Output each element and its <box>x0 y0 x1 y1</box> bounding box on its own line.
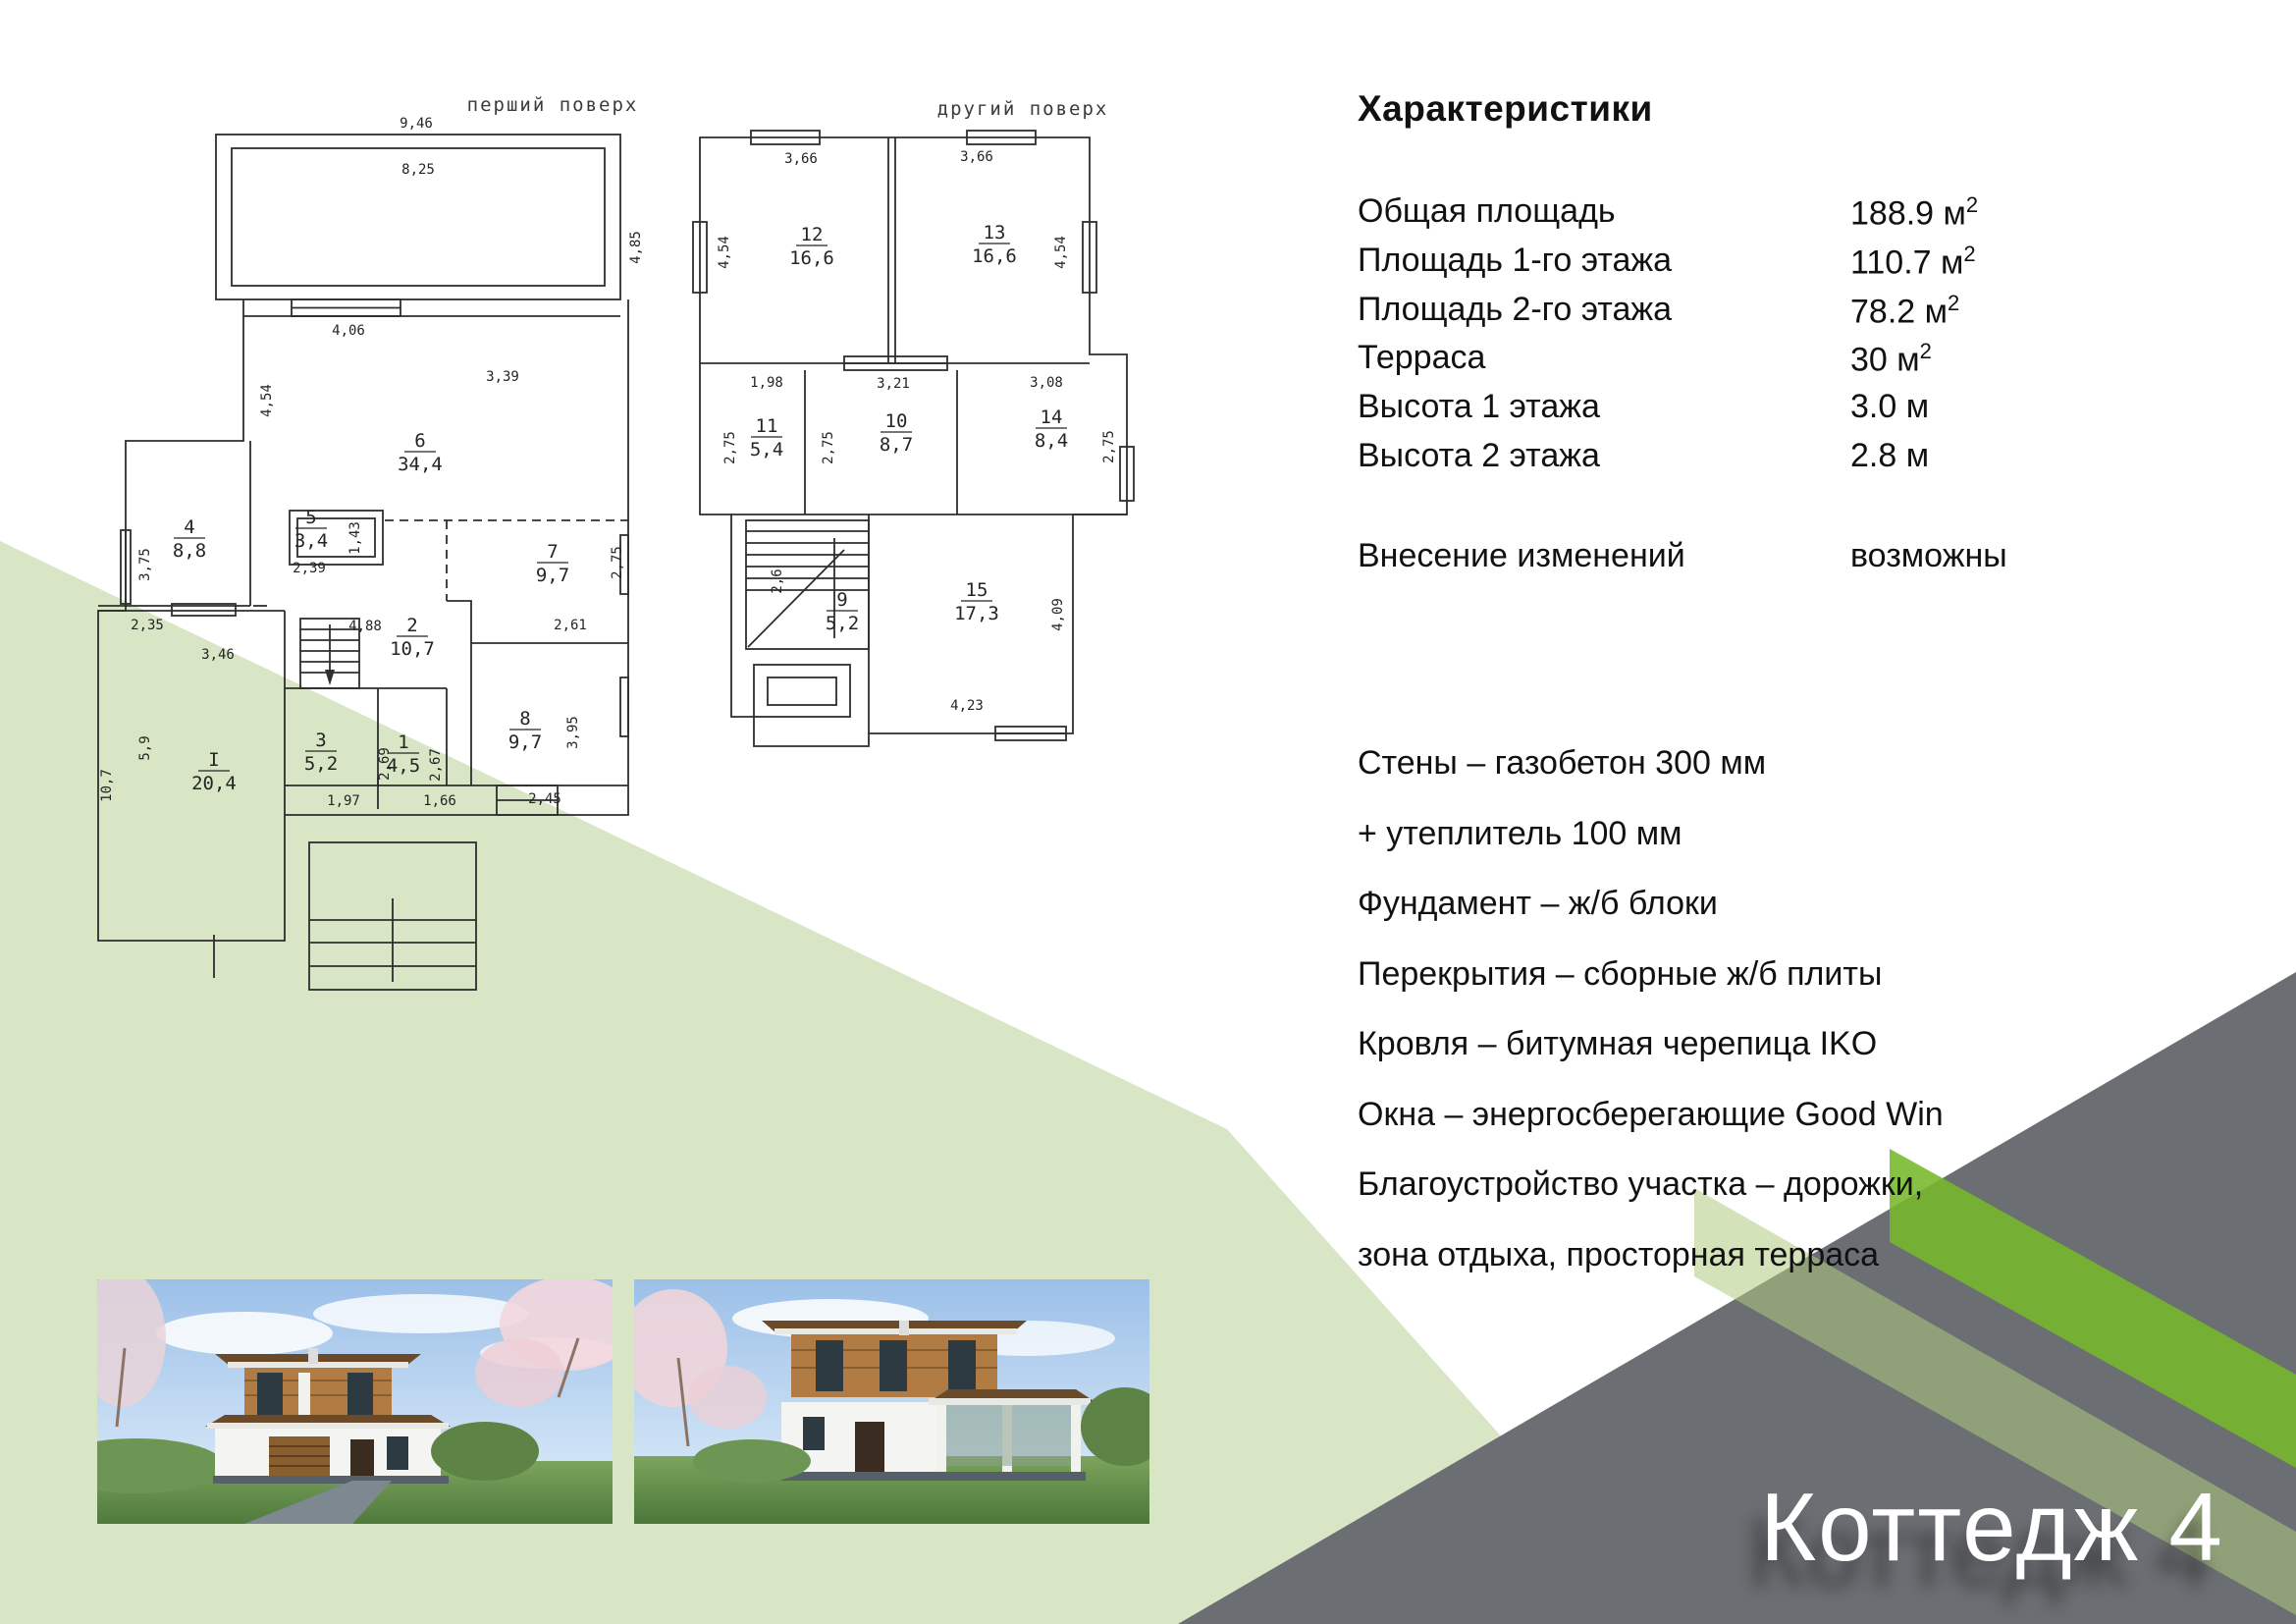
construction-detail-line: + утеплитель 100 мм <box>1358 799 2221 870</box>
dimension-label: 3,39 <box>486 369 519 385</box>
dimension-label: 2,75 <box>1101 430 1117 463</box>
room-number: 1 <box>398 731 408 753</box>
characteristic-label: Площадь 2-го этажа <box>1358 291 1850 329</box>
characteristic-value: 3.0 м <box>1850 388 1929 426</box>
dimension-label: 3,21 <box>877 376 910 392</box>
dimension-label: 1,43 <box>347 521 363 555</box>
dimension-label: 4,23 <box>950 698 984 714</box>
dimension-label: 4,85 <box>628 231 644 264</box>
room-number: I <box>208 749 219 771</box>
dimension-label: 4,06 <box>332 323 365 339</box>
changes-note: Внесение изменений возможны <box>1358 537 2163 575</box>
dimension-label: 4,54 <box>717 236 732 269</box>
dimension-label: 10,7 <box>99 769 115 802</box>
second-floor-plan-labels: 1216,61316,6115,4108,7148,495,21517,33,6… <box>717 149 1117 714</box>
project-title: Коттедж 4 <box>1760 1479 2224 1575</box>
room-number: 4 <box>184 516 194 538</box>
room-number: 5 <box>305 507 316 528</box>
room-area: 5,4 <box>750 439 783 460</box>
characteristic-label: Общая площадь <box>1358 192 1850 231</box>
characteristic-row: Высота 1 этажа3.0 м <box>1358 388 2163 437</box>
characteristics-table: Общая площадь188.9 м2Площадь 1-го этажа1… <box>1358 192 2163 486</box>
characteristic-value: 110.7 м2 <box>1850 242 1976 282</box>
room-area: 8,8 <box>173 540 206 562</box>
characteristic-row: Площадь 1-го этажа110.7 м2 <box>1358 242 2163 291</box>
room-area: 20,4 <box>191 773 237 794</box>
characteristic-value: 188.9 м2 <box>1850 192 1978 233</box>
changes-note-value: возможны <box>1850 537 2007 575</box>
brochure-page: { "characteristics": { "title": "Характе… <box>0 0 2296 1624</box>
room-number: 12 <box>801 224 824 245</box>
characteristic-row: Общая площадь188.9 м2 <box>1358 192 2163 242</box>
dimension-label: 9,46 <box>400 116 433 132</box>
dimension-label: 4,54 <box>1053 236 1069 269</box>
dimension-label: 1,97 <box>327 793 360 809</box>
dimension-label: 2,45 <box>528 791 561 807</box>
changes-note-label: Внесение изменений <box>1358 537 1850 575</box>
dimension-label: 2,35 <box>131 618 164 633</box>
characteristic-value: 2.8 м <box>1850 437 1929 475</box>
characteristics-title: Характеристики <box>1358 88 1653 130</box>
room-number: 10 <box>885 410 908 432</box>
construction-detail-line: Стены – газобетон 300 мм <box>1358 729 2221 799</box>
room-area: 16,6 <box>972 245 1017 267</box>
room-area: 16,6 <box>789 247 834 269</box>
dimension-label: 1,66 <box>423 793 456 809</box>
dimension-label: 2,6 <box>770 568 785 593</box>
dimension-label: 2,75 <box>722 431 738 464</box>
dimension-label: 3,08 <box>1030 375 1063 391</box>
dimension-label: 1,98 <box>750 375 783 391</box>
room-number: 14 <box>1041 406 1063 428</box>
room-area: 5,2 <box>826 613 859 634</box>
cottage-photo-front <box>97 1279 613 1524</box>
construction-detail-line: Окна – энергосберегающие Good Win <box>1358 1080 2221 1151</box>
construction-detail-line: Перекрытия – сборные ж/б плиты <box>1358 940 2221 1010</box>
dimension-label: 2,69 <box>377 747 393 781</box>
room-number: 13 <box>984 222 1006 244</box>
room-number: 2 <box>406 615 417 636</box>
room-area: 8,4 <box>1035 430 1068 452</box>
dimension-label: 2,39 <box>293 561 326 576</box>
construction-detail-line: Благоустройство участка – дорожки, <box>1358 1150 2221 1220</box>
construction-detail-line: Кровля – битумная черепица IKO <box>1358 1009 2221 1080</box>
dimension-label: 3,66 <box>960 149 993 165</box>
characteristic-label: Площадь 1-го этажа <box>1358 242 1850 280</box>
dimension-label: 3,95 <box>565 716 581 749</box>
construction-detail-line: Фундамент – ж/б блоки <box>1358 869 2221 940</box>
characteristic-row: Высота 2 этажа2.8 м <box>1358 437 2163 486</box>
cottage-photo-front-render <box>97 1279 613 1524</box>
room-number: 6 <box>414 430 425 452</box>
dimension-label: 2,75 <box>821 431 836 464</box>
room-area: 9,7 <box>508 731 542 753</box>
characteristic-label: Терраса <box>1358 339 1850 377</box>
dimension-label: 4,88 <box>348 619 382 634</box>
characteristic-label: Высота 2 этажа <box>1358 437 1850 475</box>
dimension-label: 4,09 <box>1050 598 1066 631</box>
characteristic-row: Площадь 2-го этажа78.2 м2 <box>1358 291 2163 340</box>
dimension-label: 3,46 <box>201 647 235 663</box>
room-area: 3,4 <box>294 530 328 552</box>
characteristic-value: 78.2 м2 <box>1850 291 1959 331</box>
room-number: 11 <box>756 415 778 437</box>
room-number: 15 <box>966 579 988 601</box>
room-number: 3 <box>315 730 326 751</box>
room-number: 8 <box>519 708 530 730</box>
dimension-label: 2,67 <box>428 748 444 782</box>
dimension-label: 8,25 <box>401 162 435 178</box>
cottage-photo-terrace <box>634 1279 1149 1524</box>
dimension-label: 2,61 <box>554 618 587 633</box>
room-number: 9 <box>836 589 847 611</box>
characteristic-value: 30 м2 <box>1850 339 1932 379</box>
room-area: 5,2 <box>304 753 338 775</box>
construction-detail-line: зона отдыха, просторная терраса <box>1358 1220 2221 1291</box>
room-area: 8,7 <box>880 434 913 456</box>
room-number: 7 <box>547 541 558 563</box>
room-area: 17,3 <box>954 603 999 624</box>
dimension-label: 3,66 <box>784 151 818 167</box>
characteristic-row: Терраса30 м2 <box>1358 339 2163 388</box>
room-area: 9,7 <box>536 565 569 586</box>
dimension-label: 4,54 <box>259 384 275 417</box>
dimension-label: 3,75 <box>137 548 153 581</box>
cottage-photo-terrace-render <box>634 1279 1149 1524</box>
first-floor-plan-labels: 634,448,853,479,7210,735,214,589,7I20,49… <box>99 116 644 809</box>
first-floor-title: перший поверх <box>467 94 639 116</box>
construction-details: Стены – газобетон 300 мм+ утеплитель 100… <box>1358 729 2221 1290</box>
second-floor-title: другий поверх <box>937 98 1109 120</box>
room-area: 10,7 <box>390 638 435 660</box>
dimension-label: 5,9 <box>137 735 153 760</box>
characteristic-label: Высота 1 этажа <box>1358 388 1850 426</box>
dimension-label: 2,75 <box>610 546 625 579</box>
room-area: 34,4 <box>398 454 443 475</box>
